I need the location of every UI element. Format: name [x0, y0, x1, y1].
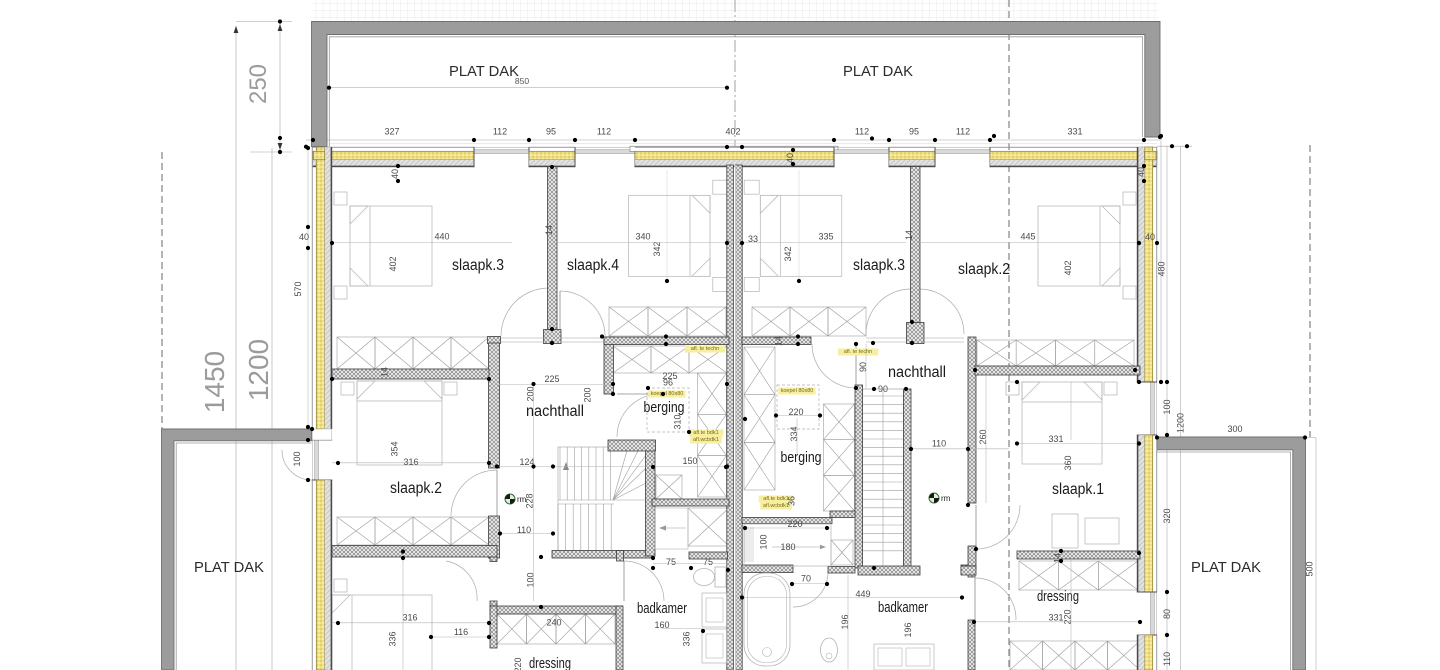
- svg-text:14: 14: [904, 230, 914, 240]
- svg-text:afl.wcbdk1: afl.wcbdk1: [763, 503, 789, 509]
- svg-text:316: 316: [403, 457, 418, 467]
- svg-text:354: 354: [390, 441, 400, 456]
- svg-text:327: 327: [384, 127, 399, 137]
- svg-text:220: 220: [787, 519, 802, 529]
- svg-text:95: 95: [546, 127, 556, 137]
- svg-text:250: 250: [245, 64, 272, 104]
- svg-text:afl.wcbdk1: afl.wcbdk1: [693, 437, 719, 443]
- svg-text:PLAT DAK: PLAT DAK: [194, 560, 264, 576]
- svg-text:570: 570: [293, 281, 303, 296]
- svg-text:slaapk.1: slaapk.1: [1052, 481, 1104, 498]
- svg-text:110: 110: [932, 439, 946, 449]
- svg-text:100: 100: [292, 451, 302, 466]
- svg-text:slaapk.2: slaapk.2: [390, 480, 442, 497]
- svg-text:331: 331: [1048, 434, 1063, 444]
- svg-text:14: 14: [380, 367, 390, 377]
- svg-text:402: 402: [725, 127, 740, 137]
- svg-text:200: 200: [526, 386, 536, 401]
- svg-text:dressing: dressing: [1037, 589, 1079, 605]
- svg-text:40: 40: [299, 232, 309, 242]
- svg-text:150: 150: [682, 456, 697, 466]
- svg-text:331: 331: [1067, 127, 1082, 137]
- svg-text:dressing: dressing: [529, 656, 571, 670]
- svg-text:koepel 80x80: koepel 80x80: [651, 391, 684, 397]
- svg-text:1450: 1450: [199, 351, 230, 413]
- svg-text:335: 335: [818, 232, 833, 242]
- svg-text:100: 100: [1162, 399, 1172, 414]
- svg-text:badkamer: badkamer: [878, 600, 928, 616]
- svg-text:slaapk.4: slaapk.4: [567, 257, 619, 274]
- svg-text:180: 180: [780, 542, 795, 552]
- svg-text:afl.te bdk1: afl.te bdk1: [693, 430, 718, 436]
- svg-text:nachthall: nachthall: [888, 364, 946, 381]
- svg-text:75: 75: [703, 557, 713, 567]
- svg-text:196: 196: [903, 622, 913, 637]
- svg-text:240: 240: [546, 618, 561, 628]
- svg-text:440: 440: [434, 232, 449, 242]
- svg-text:445: 445: [1020, 232, 1035, 242]
- svg-text:196: 196: [840, 614, 850, 629]
- svg-text:rm: rm: [941, 494, 951, 503]
- svg-text:slaapk.3: slaapk.3: [853, 257, 905, 274]
- svg-text:95: 95: [909, 127, 919, 137]
- svg-text:berging: berging: [781, 449, 822, 466]
- svg-text:badkamer: badkamer: [637, 601, 687, 617]
- svg-text:220: 220: [513, 657, 523, 670]
- svg-text:40: 40: [785, 153, 795, 163]
- svg-text:480: 480: [1157, 261, 1167, 276]
- svg-text:112: 112: [956, 127, 970, 137]
- svg-text:228: 228: [525, 493, 535, 508]
- svg-text:afl.te bdk1: afl.te bdk1: [763, 496, 788, 502]
- svg-text:320: 320: [1162, 508, 1172, 523]
- svg-text:slaapk.2: slaapk.2: [958, 261, 1010, 278]
- svg-text:100: 100: [759, 534, 769, 549]
- svg-text:40: 40: [390, 169, 400, 179]
- svg-text:PLAT DAK: PLAT DAK: [449, 64, 519, 80]
- svg-text:331: 331: [1048, 613, 1063, 623]
- svg-text:310: 310: [673, 414, 683, 429]
- svg-text:berging: berging: [644, 399, 685, 416]
- svg-text:200: 200: [583, 387, 593, 402]
- svg-text:14: 14: [544, 225, 554, 235]
- svg-text:75: 75: [666, 557, 676, 567]
- svg-text:112: 112: [855, 127, 869, 137]
- svg-text:100: 100: [526, 572, 536, 587]
- svg-text:PLAT DAK: PLAT DAK: [1191, 560, 1261, 576]
- svg-text:112: 112: [597, 127, 611, 137]
- svg-text:336: 336: [682, 631, 692, 646]
- svg-text:afl. te techn: afl. te techn: [844, 349, 872, 355]
- svg-text:110: 110: [1162, 652, 1172, 666]
- svg-text:300: 300: [1227, 424, 1242, 434]
- svg-text:402: 402: [1063, 260, 1073, 275]
- svg-text:336: 336: [388, 631, 398, 646]
- svg-text:340: 340: [635, 232, 650, 242]
- svg-text:1200: 1200: [243, 339, 274, 401]
- svg-text:40: 40: [1145, 232, 1155, 242]
- svg-text:342: 342: [652, 241, 662, 256]
- svg-text:260: 260: [978, 429, 988, 444]
- svg-text:40: 40: [1136, 167, 1146, 177]
- svg-text:slaapk.3: slaapk.3: [452, 257, 504, 274]
- svg-text:PLAT DAK: PLAT DAK: [843, 64, 913, 80]
- svg-text:1200: 1200: [1176, 413, 1186, 433]
- svg-text:36: 36: [787, 496, 797, 506]
- svg-text:14: 14: [774, 336, 784, 346]
- svg-text:360: 360: [1063, 455, 1073, 470]
- svg-text:402: 402: [388, 256, 398, 271]
- svg-text:112: 112: [493, 127, 507, 137]
- svg-text:70: 70: [801, 574, 811, 584]
- svg-text:342: 342: [783, 246, 793, 261]
- svg-text:80: 80: [1162, 609, 1172, 619]
- svg-text:afl. te techn: afl. te techn: [691, 346, 719, 352]
- svg-text:316: 316: [402, 613, 417, 623]
- svg-text:500: 500: [1305, 561, 1315, 576]
- svg-text:koepel 80x80: koepel 80x80: [781, 388, 814, 394]
- svg-text:90: 90: [858, 362, 868, 372]
- svg-text:96: 96: [663, 378, 673, 388]
- svg-text:116: 116: [454, 627, 468, 637]
- svg-text:334: 334: [789, 426, 799, 441]
- svg-text:nachthall: nachthall: [526, 403, 584, 420]
- svg-text:225: 225: [544, 374, 559, 384]
